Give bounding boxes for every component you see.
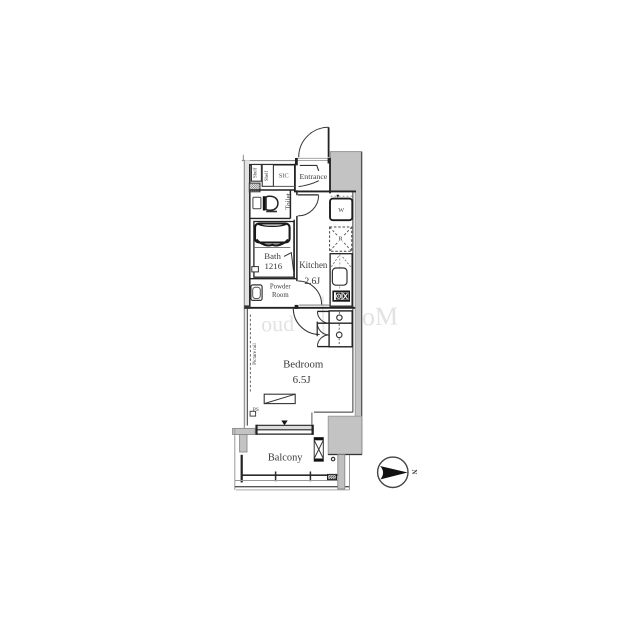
svg-text:Kitchen: Kitchen: [299, 260, 328, 270]
svg-text:Powder: Powder: [270, 284, 292, 291]
svg-text:Balcony: Balcony: [268, 453, 303, 464]
svg-text:oM: oM: [362, 302, 399, 332]
svg-text:Bedroom: Bedroom: [283, 359, 324, 371]
svg-text:R: R: [338, 235, 343, 242]
svg-text:2.6J: 2.6J: [304, 276, 320, 287]
svg-text:Room: Room: [272, 292, 289, 299]
svg-text:1216: 1216: [265, 261, 283, 271]
svg-text:oud: oud: [261, 311, 295, 337]
svg-text:SIC: SIC: [279, 173, 289, 180]
svg-text:Bath: Bath: [264, 251, 281, 261]
svg-text:Toilet: Toilet: [284, 193, 292, 209]
svg-text:N: N: [410, 469, 417, 474]
svg-text:W: W: [338, 207, 344, 214]
svg-text:6.5J: 6.5J: [293, 374, 312, 386]
svg-text:Shelf: Shelf: [265, 170, 270, 181]
svg-text:Entrance: Entrance: [300, 172, 328, 181]
svg-text:Shelf: Shelf: [253, 167, 258, 178]
svg-text:Picture rail: Picture rail: [253, 343, 258, 365]
